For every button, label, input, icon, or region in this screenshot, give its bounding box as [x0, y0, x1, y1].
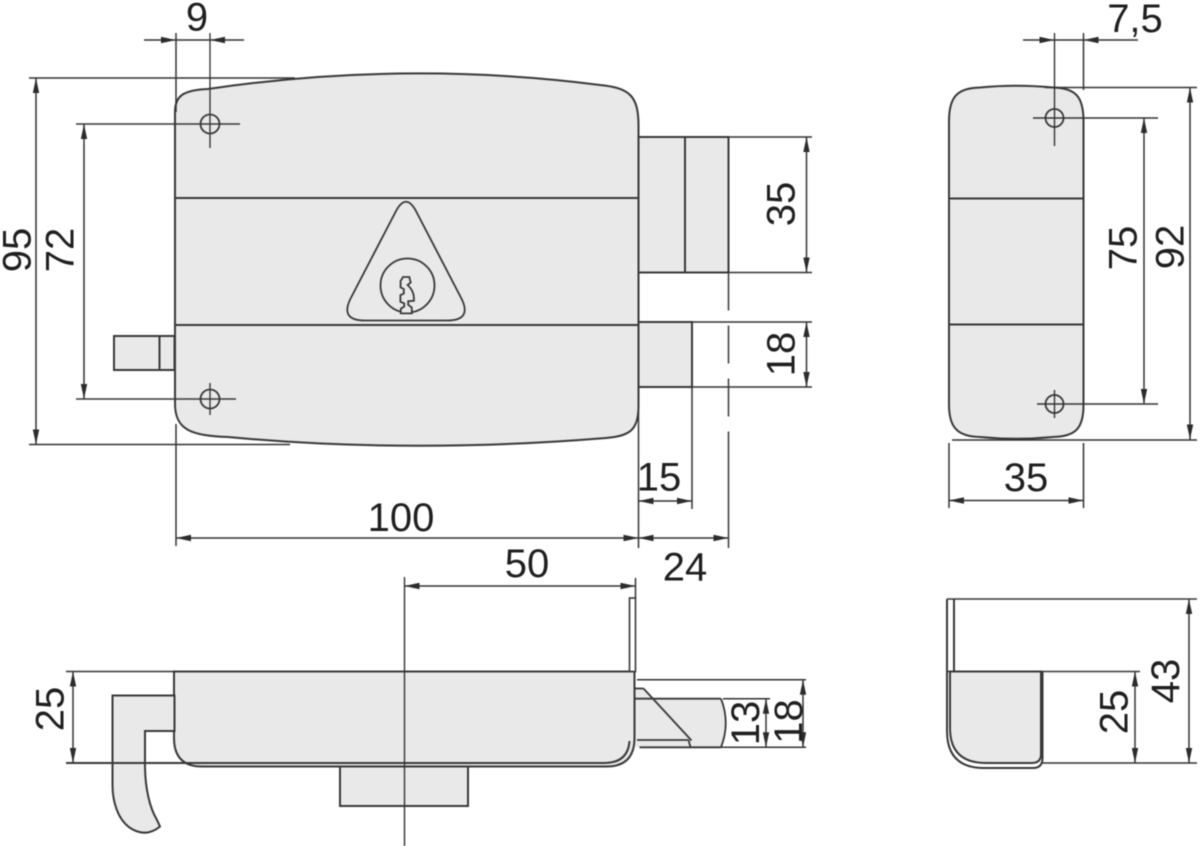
- svg-text:100: 100: [368, 496, 435, 540]
- svg-text:35: 35: [760, 182, 804, 227]
- svg-text:18: 18: [767, 699, 811, 744]
- svg-text:43: 43: [1144, 659, 1188, 704]
- svg-text:92: 92: [1149, 225, 1193, 270]
- svg-text:25: 25: [1093, 690, 1137, 735]
- svg-text:95: 95: [0, 228, 40, 273]
- svg-text:75: 75: [1102, 226, 1146, 271]
- svg-text:72: 72: [39, 228, 83, 273]
- svg-text:24: 24: [663, 546, 708, 590]
- svg-text:18: 18: [760, 332, 804, 377]
- svg-text:50: 50: [505, 542, 550, 586]
- svg-text:35: 35: [1004, 456, 1049, 500]
- svg-text:7,5: 7,5: [1107, 0, 1163, 41]
- svg-text:25: 25: [29, 687, 73, 732]
- svg-text:15: 15: [637, 456, 682, 500]
- svg-text:9: 9: [186, 0, 208, 40]
- svg-text:13: 13: [724, 701, 768, 746]
